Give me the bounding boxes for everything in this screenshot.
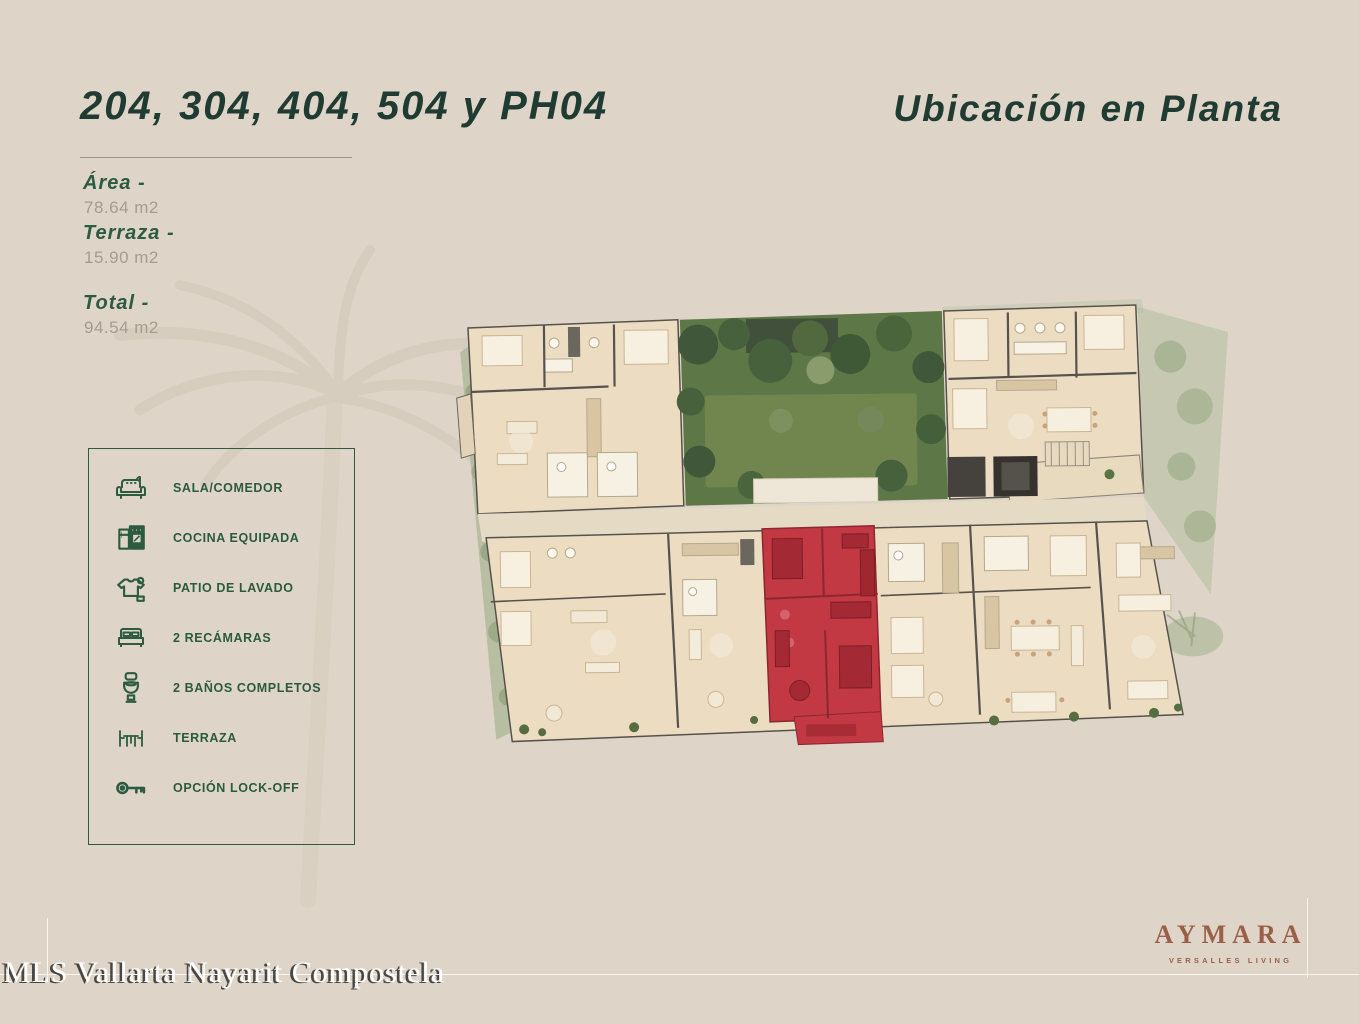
amenities-legend: SALA/COMEDOR COCINA EQUIPADA [88, 448, 355, 845]
legend-item-lockoff: OPCIÓN LOCK-OFF [89, 763, 354, 813]
garden-courtyard [676, 311, 948, 506]
brochure-page: 204, 304, 404, 504 y PH04 Ubicación en P… [0, 0, 1359, 1024]
legend-item-cocina: COCINA EQUIPADA [89, 513, 354, 563]
legend-item-patio: PATIO DE LAVADO [89, 563, 354, 613]
legend-item-label: PATIO DE LAVADO [173, 581, 294, 595]
legend-item-label: OPCIÓN LOCK-OFF [173, 781, 299, 795]
bed-icon [111, 620, 151, 656]
brand-logo: AYMARA VERSALLES LIVING [1148, 920, 1313, 965]
laundry-icon [111, 570, 151, 606]
brand-name: AYMARA [1148, 920, 1313, 950]
top-left-unit [456, 320, 684, 514]
legend-item-label: 2 BAÑOS COMPLETOS [173, 681, 321, 695]
page-title: 204, 304, 404, 504 y PH04 [80, 84, 608, 129]
title-underline [80, 157, 352, 158]
toilet-icon [111, 670, 151, 706]
area-label: Área - [83, 172, 175, 195]
terrace-label: Terraza - [83, 222, 175, 245]
key-icon [111, 770, 151, 806]
sofa-icon [111, 470, 151, 506]
legend-item-banos: 2 BAÑOS COMPLETOS [89, 663, 354, 713]
total-value: 94.54 m2 [84, 318, 175, 338]
highlighted-unit [762, 526, 883, 745]
legend-item-sala: SALA/COMEDOR [89, 463, 354, 513]
legend-item-terraza: TERRAZA [89, 713, 354, 763]
terrace-value: 15.90 m2 [84, 248, 175, 268]
area-value: 78.64 m2 [84, 198, 175, 218]
location-title: Ubicación en Planta [893, 88, 1283, 130]
total-label: Total - [83, 292, 175, 315]
watermark-vline-right [1307, 898, 1308, 978]
kitchen-icon [111, 520, 151, 556]
legend-item-label: SALA/COMEDOR [173, 481, 283, 495]
measurements: Área - 78.64 m2 Terraza - 15.90 m2 Total… [83, 170, 175, 342]
floor-plan-image [450, 298, 1248, 750]
legend-item-label: TERRAZA [173, 731, 237, 745]
brand-tagline: VERSALLES LIVING [1148, 956, 1313, 965]
legend-item-label: COCINA EQUIPADA [173, 531, 299, 545]
terrace-icon [111, 720, 151, 756]
legend-item-label: 2 RECÁMARAS [173, 631, 271, 645]
mls-watermark: MLS Vallarta Nayarit Compostela [4, 956, 445, 990]
legend-item-recamaras: 2 RECÁMARAS [89, 613, 354, 663]
